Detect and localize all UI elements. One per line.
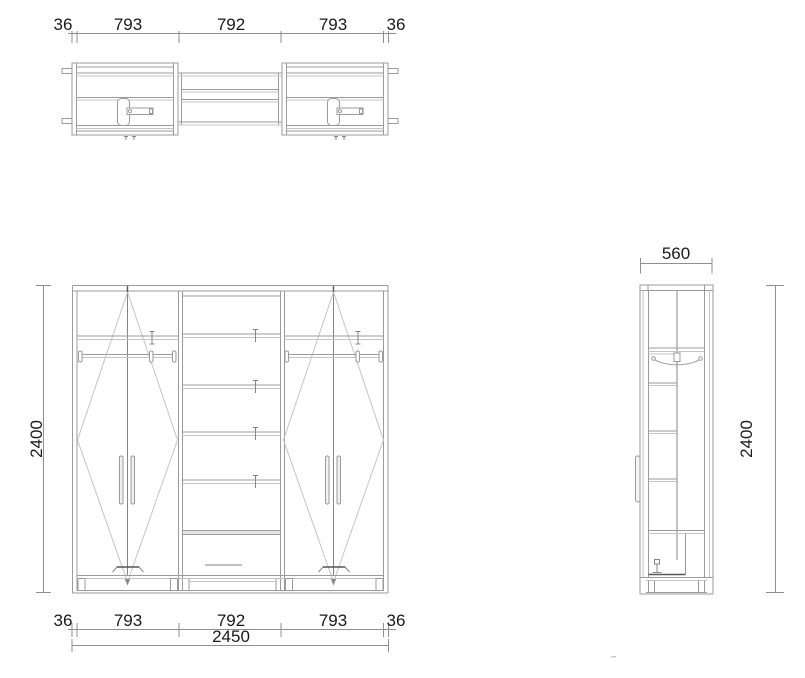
rail-bracket [150, 351, 154, 362]
front-view: 2400 [27, 285, 405, 652]
plan-middle-cabinet [178, 73, 282, 125]
door-handle [337, 456, 341, 504]
side-carcass [640, 285, 713, 594]
front-width-dimension-rows: 36 793 792 793 36 2450 [54, 611, 406, 652]
plan-dim-right-bay: 793 [319, 15, 347, 34]
rail-bracket [379, 351, 383, 362]
door-handle [326, 456, 330, 504]
door-handle [120, 456, 124, 504]
plan-dimension-row: 36 793 792 793 36 [54, 15, 406, 43]
foot-leveler [653, 560, 662, 573]
door-swing-diagonal [78, 292, 128, 440]
door-swing-diagonal [128, 292, 178, 440]
front-height-dimension: 2400 [27, 285, 51, 593]
door-swing-diagonal [334, 292, 384, 440]
shelf-pins [253, 330, 258, 489]
door-meeting-mark [125, 579, 130, 586]
front-dim-right-gap: 36 [387, 611, 406, 630]
shelf-thick-line [183, 531, 281, 535]
plinth-foot [171, 579, 178, 591]
hinge-tab [62, 69, 72, 74]
rail-end [652, 357, 656, 361]
plinth-foot [286, 579, 293, 591]
plan-dim-middle-bay: 792 [217, 15, 245, 34]
front-height-label: 2400 [27, 420, 46, 458]
plinth-foot [78, 579, 85, 591]
front-middle-shelves [183, 296, 281, 565]
hanging-rail-section [674, 353, 680, 362]
plan-door-position-marks [124, 136, 136, 140]
rail-bracket [173, 351, 177, 362]
plan-dim-left-bay: 793 [114, 15, 142, 34]
shelf-pin [150, 332, 155, 345]
plan-view: 36 793 792 793 36 [54, 15, 406, 140]
front-left-door-pair [77, 286, 179, 586]
front-dim-right-bay: 793 [319, 611, 347, 630]
hinge-tab [388, 119, 398, 124]
hinge-tab [62, 119, 72, 124]
stray-mark [611, 656, 616, 658]
rail-bracket [356, 351, 360, 362]
side-height-label: 2400 [737, 420, 756, 458]
rail-end [699, 357, 703, 361]
rail-bracket [79, 351, 83, 362]
door-meeting-mark [331, 579, 336, 586]
shelf-pin [356, 332, 361, 345]
side-width-label: 560 [662, 244, 690, 263]
front-carcass-frame [73, 286, 389, 594]
front-dim-left-bay: 793 [114, 611, 142, 630]
front-dim-total-width: 2450 [212, 627, 250, 646]
plan-door-position-marks [334, 136, 346, 140]
plinth-foot [376, 579, 383, 591]
door-swing-diagonal [284, 292, 334, 440]
hinge-tab [388, 69, 398, 74]
side-width-dimension: 560 [640, 244, 713, 274]
front-plinth [73, 576, 389, 594]
side-view: 560 2400 [636, 244, 785, 594]
side-plinth [640, 578, 713, 593]
front-dim-left-gap: 36 [54, 611, 73, 630]
wardrobe-technical-drawing: 36 793 792 793 36 [0, 0, 805, 678]
plan-dim-left-gap: 36 [54, 15, 73, 34]
plan-right-cabinet [282, 63, 398, 140]
front-right-door-pair [284, 286, 384, 586]
door-handle [131, 456, 135, 504]
side-height-dimension: 2400 [737, 285, 784, 593]
plan-dim-right-gap: 36 [387, 15, 406, 34]
door-handle-side [636, 456, 641, 502]
plan-left-cabinet [62, 63, 178, 140]
side-interior [636, 348, 705, 575]
rail-bracket [285, 351, 289, 362]
drawing-canvas: 36 793 792 793 36 [0, 0, 805, 678]
